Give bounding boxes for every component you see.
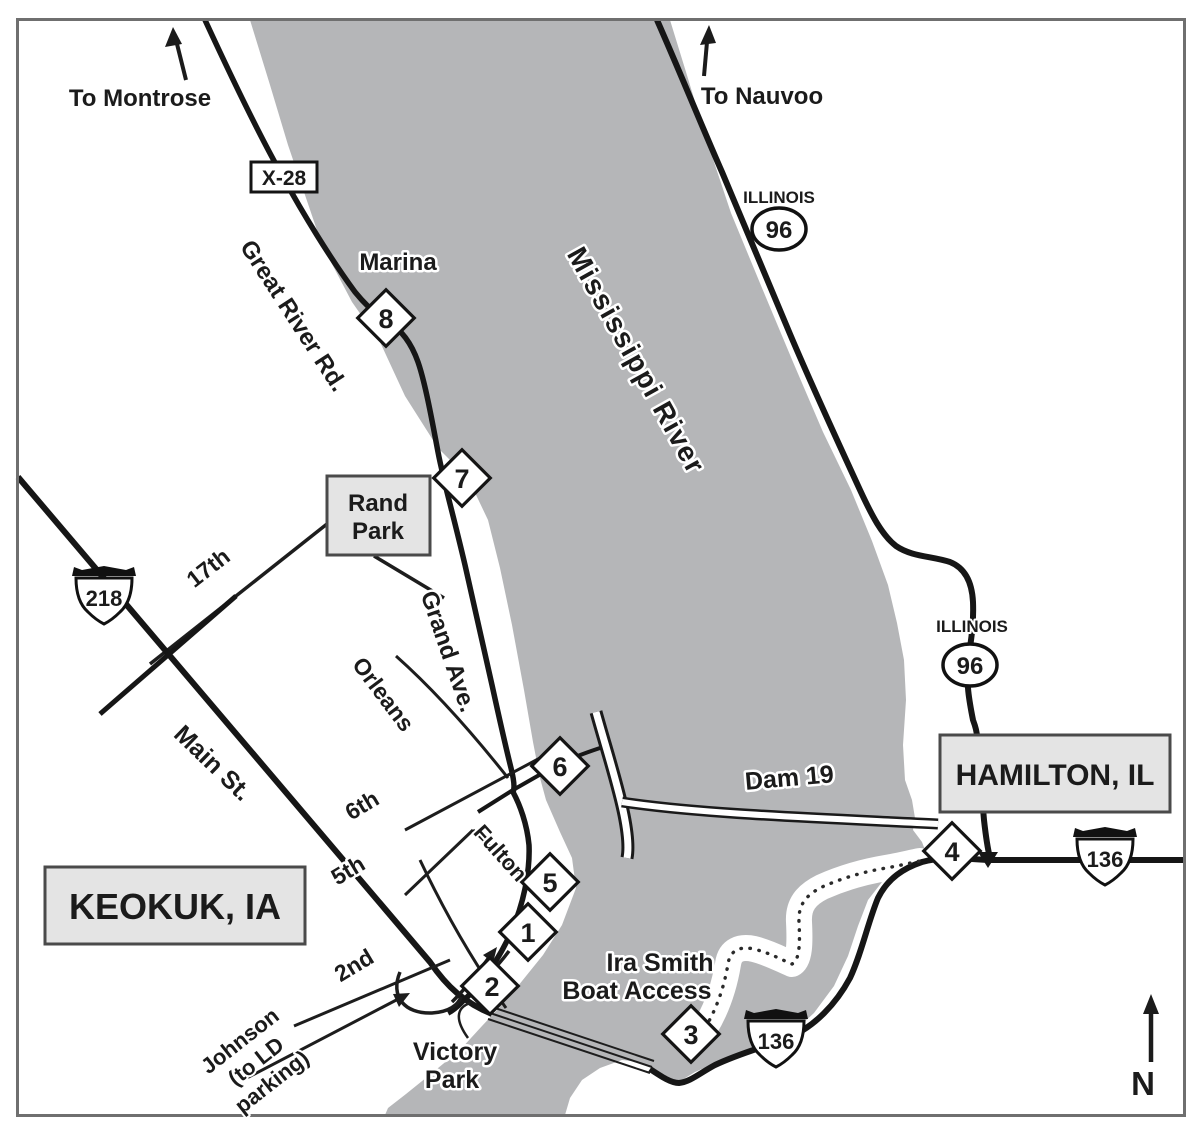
rand-park-label-line1: Rand bbox=[348, 490, 408, 517]
marker-8-number: 8 bbox=[378, 304, 393, 334]
victory-park-label-line1: Victory bbox=[413, 1038, 497, 1066]
hamilton-label: HAMILTON, IL bbox=[956, 759, 1155, 792]
to-nauvoo-label: To Nauvoo bbox=[701, 83, 823, 110]
marina-label: Marina bbox=[359, 249, 437, 276]
hamilton-box: HAMILTON, IL bbox=[940, 735, 1170, 812]
rand-park-label-line2: Park bbox=[352, 518, 405, 545]
us218-label: 218 bbox=[86, 586, 123, 611]
marker-2-number: 2 bbox=[484, 972, 499, 1002]
il96-south-label: 96 bbox=[957, 653, 984, 680]
marker-4-number: 4 bbox=[944, 837, 959, 867]
north-label: N bbox=[1131, 1065, 1155, 1102]
map-page: KEOKUK, IA HAMILTON, IL Rand Park X-28 2… bbox=[0, 0, 1200, 1128]
il96-north-label: 96 bbox=[766, 217, 793, 244]
victory-park-label-line2: Park bbox=[425, 1066, 479, 1094]
marker-1-number: 1 bbox=[520, 918, 535, 948]
ira-smith-label-line1: Ira Smith bbox=[607, 949, 714, 977]
us136-south-label: 136 bbox=[758, 1029, 795, 1054]
rand-park-box: Rand Park bbox=[327, 476, 430, 555]
marker-5-number: 5 bbox=[542, 868, 557, 898]
keokuk-hamilton-map: KEOKUK, IA HAMILTON, IL Rand Park X-28 2… bbox=[0, 0, 1200, 1128]
us136-east-label: 136 bbox=[1087, 847, 1124, 872]
keokuk-label: KEOKUK, IA bbox=[69, 886, 281, 927]
marker-3-number: 3 bbox=[683, 1020, 698, 1050]
illinois-label-north: ILLINOIS bbox=[743, 188, 815, 207]
ira-smith-label-line2: Boat Access bbox=[562, 977, 711, 1005]
to-montrose-label: To Montrose bbox=[69, 85, 211, 112]
marker-7-number: 7 bbox=[454, 464, 469, 494]
illinois-label-south: ILLINOIS bbox=[936, 617, 1008, 636]
keokuk-box: KEOKUK, IA bbox=[45, 867, 305, 944]
marker-6-number: 6 bbox=[552, 752, 567, 782]
x28-label: X-28 bbox=[262, 167, 307, 190]
route-shield-x28: X-28 bbox=[251, 162, 317, 192]
